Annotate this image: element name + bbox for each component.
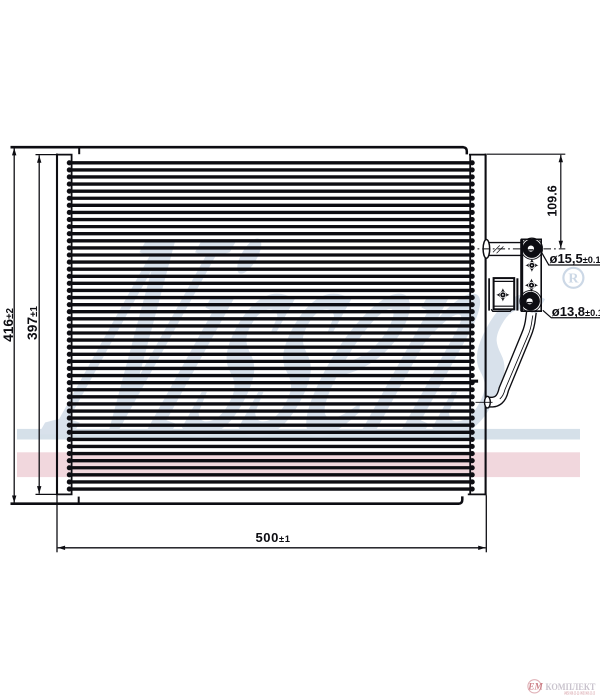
svg-text:416±2: 416±2 xyxy=(1,308,16,342)
svg-text:(495) 968-23-22 (495) 968-23-2: (495) 968-23-22 (495) 968-23-23 xyxy=(564,690,595,695)
svg-text:R: R xyxy=(568,272,579,287)
svg-text:109.6: 109.6 xyxy=(546,185,560,216)
svg-text:ø15,5±0.1: ø15,5±0.1 xyxy=(550,251,600,266)
svg-text:397±1: 397±1 xyxy=(25,306,40,340)
svg-text:500±1: 500±1 xyxy=(255,530,290,545)
svg-text:ø13,8±0.1: ø13,8±0.1 xyxy=(552,304,600,319)
svg-text:ЕМ: ЕМ xyxy=(527,683,543,693)
